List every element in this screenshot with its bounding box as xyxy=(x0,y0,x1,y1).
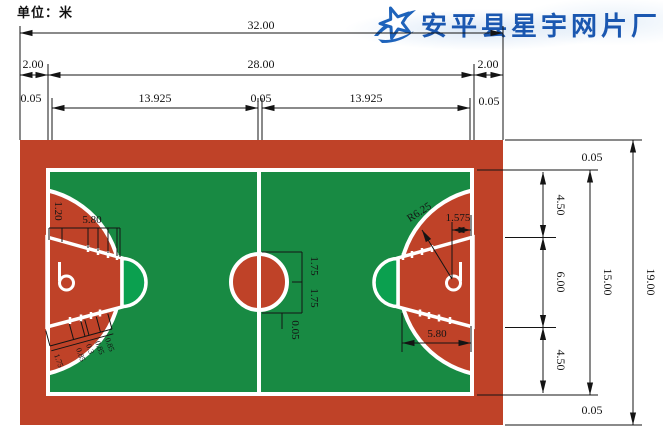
dim-inner-width: 28.00 xyxy=(248,57,275,71)
dim-total-width: 32.00 xyxy=(248,18,275,32)
dim-line-right: 0.05 xyxy=(479,94,500,108)
dim-circle-radius-upper: 1.75 xyxy=(308,256,320,276)
dim-court-width: 15.00 xyxy=(601,269,615,296)
dim-backboard-offset: 1.20 xyxy=(52,201,64,221)
dim-total-height: 19.00 xyxy=(644,269,658,296)
dim-line-left: 0.05 xyxy=(21,91,42,105)
court-diagram: 32.00 2.00 28.00 2.00 0.05 13.925 0.05 1… xyxy=(0,0,663,439)
dim-line-center: 0.05 xyxy=(251,91,272,105)
dim-right-upper: 4.50 xyxy=(554,195,568,216)
dim-right-line-bottom: 0.05 xyxy=(582,403,603,417)
court xyxy=(20,140,503,425)
dim-right-middle: 6.00 xyxy=(554,272,568,293)
dim-left-lane-length: 5.80 xyxy=(82,214,102,226)
dim-rim-offset: 1.575 xyxy=(446,212,471,224)
dim-circle-radius-lower: 1.75 xyxy=(308,288,320,308)
dim-margin-right: 2.00 xyxy=(478,57,499,71)
dim-right-lane-length: 5.80 xyxy=(427,328,447,340)
dim-half-left: 13.925 xyxy=(139,91,172,105)
dim-margin-left: 2.00 xyxy=(23,57,44,71)
basketball-court-drawing-page: 单位：米 安平县星宇网片厂 xyxy=(0,0,663,439)
dim-center-line-width: 0.05 xyxy=(289,320,301,340)
dim-right-lower: 4.50 xyxy=(554,350,568,371)
dim-half-right: 13.925 xyxy=(350,91,383,105)
dim-right-line-top: 0.05 xyxy=(582,150,603,164)
